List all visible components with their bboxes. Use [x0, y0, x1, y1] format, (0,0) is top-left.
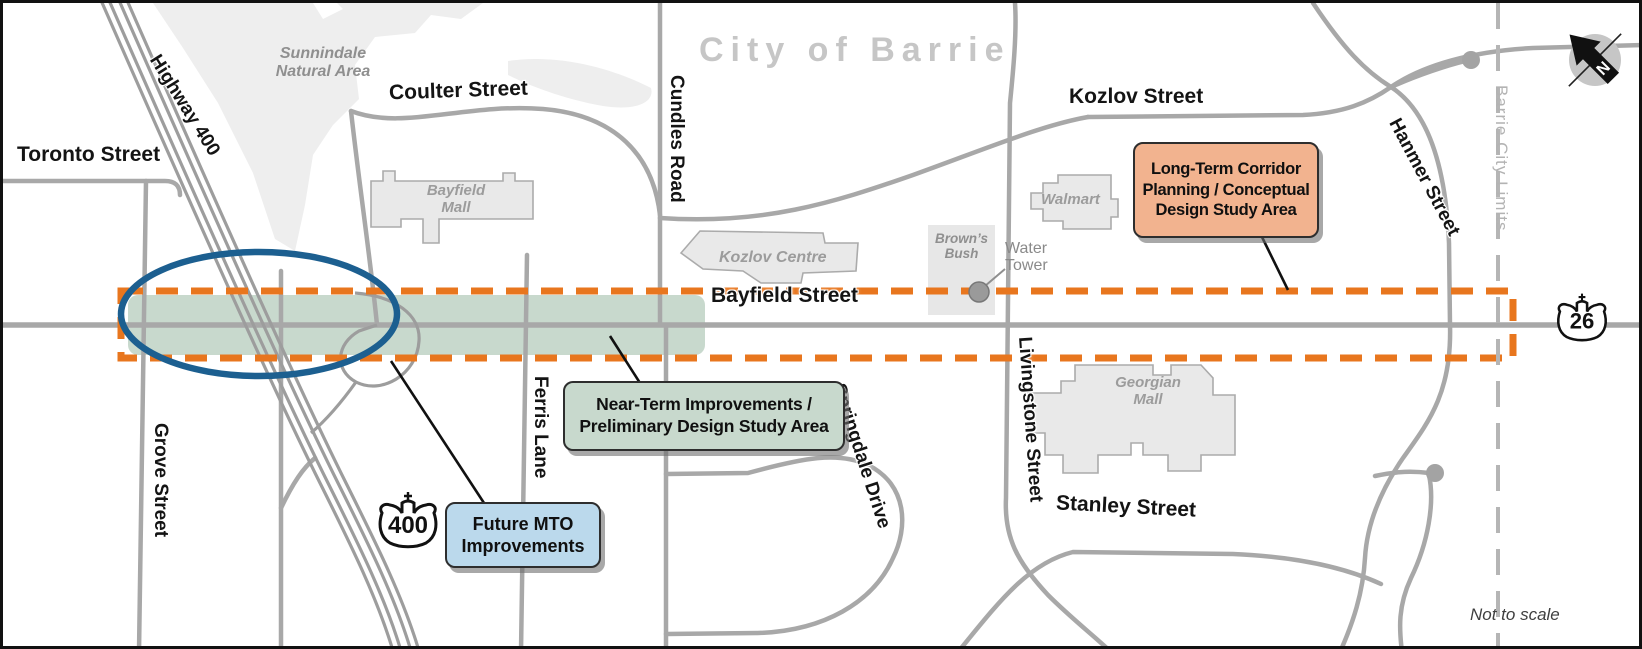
label-browns-bush: Brown’s Bush [930, 231, 993, 261]
leader-long-term [1261, 235, 1288, 290]
label-bayfield-street: Bayfield Street [711, 284, 858, 308]
road-hanmer-branch [1375, 472, 1429, 476]
callout-long-term-study-area: Long-Term Corridor Planning / Conceptual… [1133, 142, 1319, 238]
label-kozlov-centre: Kozlov Centre [719, 249, 827, 267]
label-georgian-mall: Georgian Mall [1093, 375, 1203, 409]
barrie-study-area-map: 400 26 N City of Barrie Toronto Street C… [0, 0, 1642, 649]
callout-near-term-study-area: Near-Term Improvements / Preliminary Des… [563, 381, 845, 451]
road-kozlov-deadend [1391, 61, 1465, 87]
shield-26-label: 26 [1570, 309, 1595, 334]
label-kozlov-street: Kozlov Street [1069, 85, 1203, 109]
map-title: City of Barrie [699, 31, 1011, 70]
road-end-dot-north [1462, 51, 1480, 69]
highway-400-shield-icon: 400 [380, 492, 436, 547]
label-coulter-street: Coulter Street [389, 77, 529, 106]
label-sunnindale-natural-area: Sunnindale Natural Area [258, 45, 388, 81]
label-toronto-street: Toronto Street [17, 143, 160, 167]
label-walmart: Walmart [1041, 192, 1100, 209]
road-grove-street [139, 181, 146, 649]
water-tower-dot [969, 282, 989, 302]
interchange-ramp-tail [311, 382, 356, 433]
label-grove-street: Grove Street [149, 423, 171, 537]
road-end-dot-south [1426, 464, 1444, 482]
leader-future-mto [391, 361, 484, 503]
highway-26-shield-icon: 26 [1558, 294, 1605, 341]
compass-rose: N [1543, 8, 1639, 104]
map-canvas: 400 26 N [3, 3, 1642, 649]
road-stanley-street [958, 552, 1381, 649]
label-bayfield-mall: Bayfield Mall [411, 183, 501, 217]
callout-future-mto-improvements: Future MTO Improvements [445, 502, 601, 568]
road-hanmer-branch-south [1400, 475, 1431, 649]
road-toronto-street [3, 181, 180, 195]
label-barrie-city-limits: Barrie City Limits [1491, 85, 1511, 231]
label-ferris-lane: Ferris Lane [529, 376, 551, 478]
road-cundles-kozlov-connector [660, 117, 1088, 219]
shield-400-label: 400 [388, 512, 428, 539]
natural-area-east-lobe [508, 59, 652, 107]
label-water-tower: Water Tower [1005, 240, 1048, 275]
label-cundles-road: Cundles Road [665, 75, 687, 203]
scale-note: Not to scale [1470, 605, 1560, 625]
